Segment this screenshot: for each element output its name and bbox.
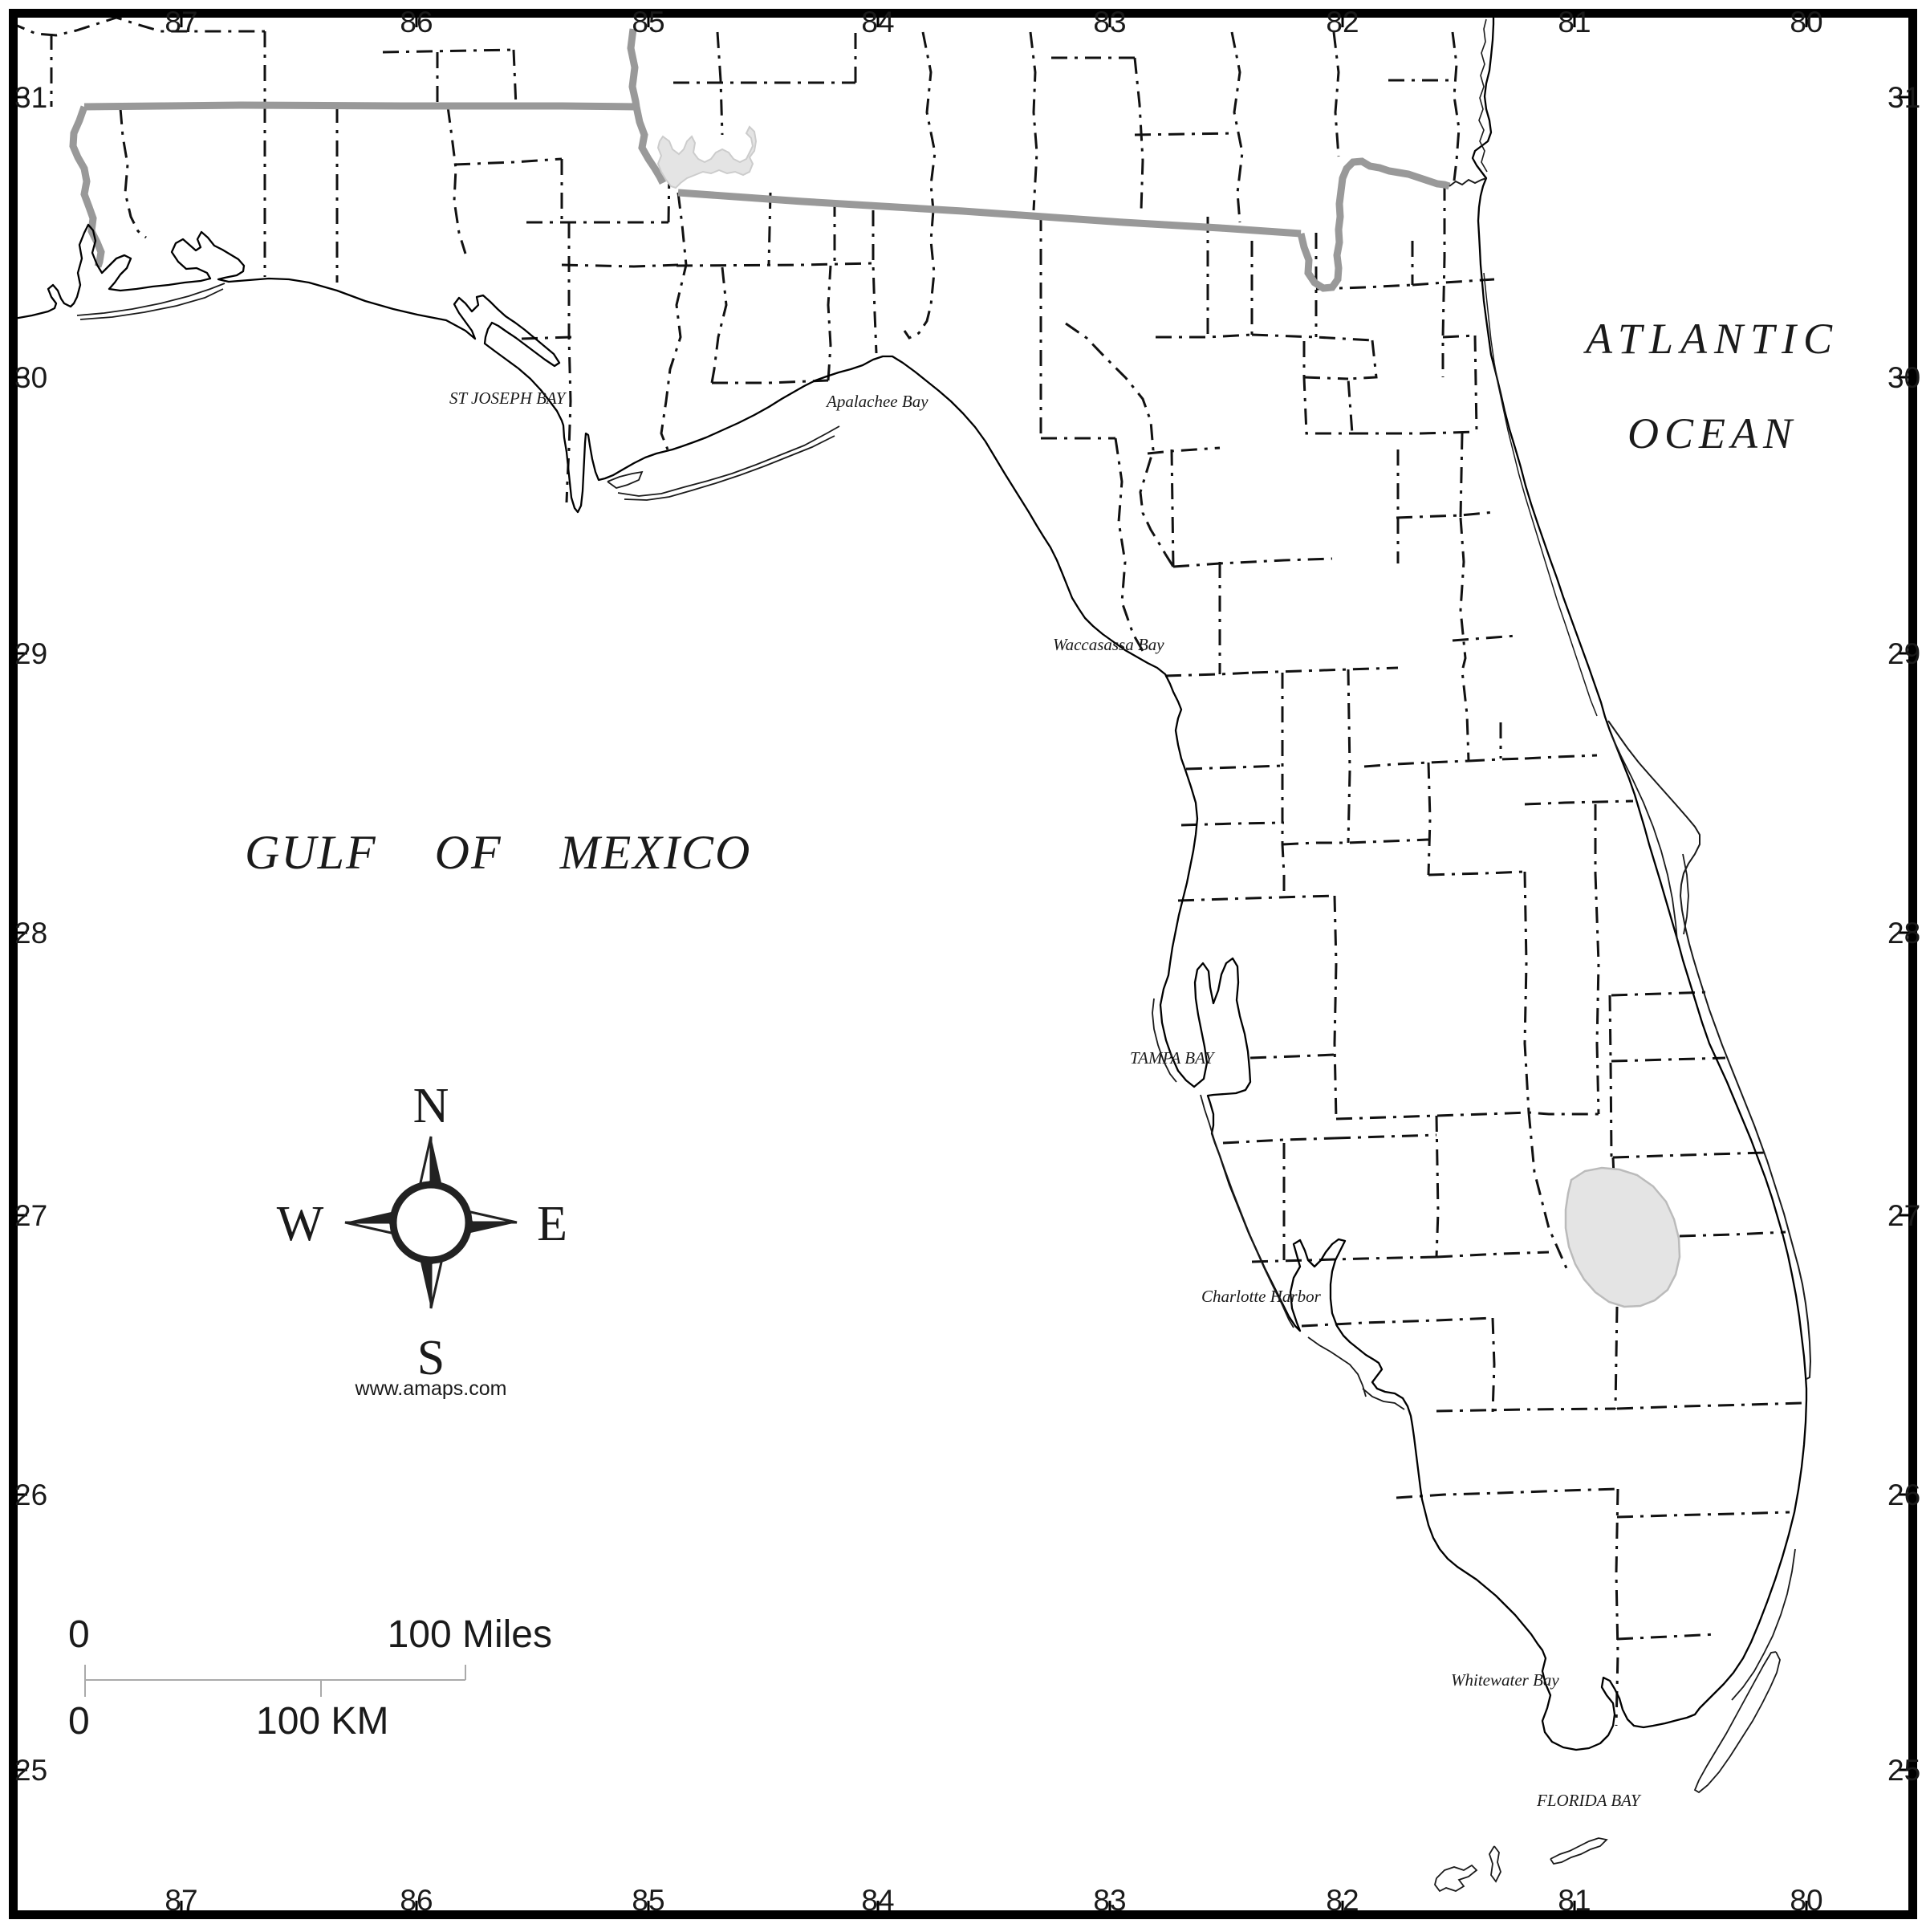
- svg-text:Waccasassa Bay: Waccasassa Bay: [1053, 635, 1164, 654]
- svg-text:81: 81: [1558, 6, 1591, 39]
- svg-text:81: 81: [1558, 1884, 1591, 1917]
- svg-text:87: 87: [165, 6, 197, 39]
- svg-text:0: 0: [68, 1613, 90, 1656]
- svg-text:E: E: [537, 1197, 567, 1251]
- svg-text:30: 30: [14, 361, 47, 394]
- svg-text:82: 82: [1326, 6, 1359, 39]
- svg-text:FLORIDA BAY: FLORIDA BAY: [1536, 1791, 1642, 1810]
- svg-text:W: W: [277, 1197, 324, 1251]
- svg-text:83: 83: [1093, 1884, 1126, 1917]
- svg-text:85: 85: [632, 6, 664, 39]
- svg-text:80: 80: [1790, 6, 1822, 39]
- svg-text:26: 26: [14, 1478, 47, 1511]
- svg-text:N: N: [413, 1079, 449, 1133]
- svg-text:OCEAN: OCEAN: [1627, 409, 1798, 458]
- svg-text:25: 25: [1887, 1754, 1920, 1787]
- svg-text:25: 25: [14, 1754, 47, 1787]
- svg-text:100 KM: 100 KM: [256, 1700, 388, 1743]
- svg-text:31: 31: [1887, 81, 1920, 114]
- svg-text:29: 29: [1887, 637, 1920, 670]
- svg-text:28: 28: [14, 917, 47, 950]
- svg-text:27: 27: [1887, 1199, 1920, 1232]
- svg-text:Charlotte Harbor: Charlotte Harbor: [1201, 1287, 1322, 1306]
- svg-text:29: 29: [14, 637, 47, 670]
- svg-text:100 Miles: 100 Miles: [388, 1613, 552, 1656]
- svg-text:31: 31: [14, 81, 47, 114]
- svg-text:83: 83: [1093, 6, 1126, 39]
- svg-text:28: 28: [1887, 917, 1920, 950]
- svg-text:80: 80: [1790, 1884, 1822, 1917]
- svg-text:30: 30: [1887, 361, 1920, 394]
- svg-text:84: 84: [861, 1884, 894, 1917]
- svg-text:86: 86: [400, 6, 433, 39]
- svg-text:Apalachee Bay: Apalachee Bay: [825, 392, 928, 411]
- svg-text:86: 86: [400, 1884, 433, 1917]
- svg-text:ST JOSEPH BAY: ST JOSEPH BAY: [449, 388, 567, 408]
- svg-text:26: 26: [1887, 1478, 1920, 1511]
- svg-text:www.amaps.com: www.amaps.com: [355, 1377, 507, 1400]
- svg-text:87: 87: [165, 1884, 197, 1917]
- svg-text:0: 0: [68, 1700, 90, 1743]
- svg-text:ATLANTIC: ATLANTIC: [1583, 315, 1839, 363]
- svg-text:TAMPA BAY: TAMPA BAY: [1130, 1048, 1216, 1068]
- svg-text:84: 84: [861, 6, 894, 39]
- svg-text:Whitewater Bay: Whitewater Bay: [1451, 1670, 1559, 1690]
- svg-text:85: 85: [632, 1884, 664, 1917]
- svg-text:27: 27: [14, 1199, 47, 1232]
- svg-text:82: 82: [1326, 1884, 1359, 1917]
- svg-text:GULF OF MEXICO: GULF OF MEXICO: [245, 826, 751, 879]
